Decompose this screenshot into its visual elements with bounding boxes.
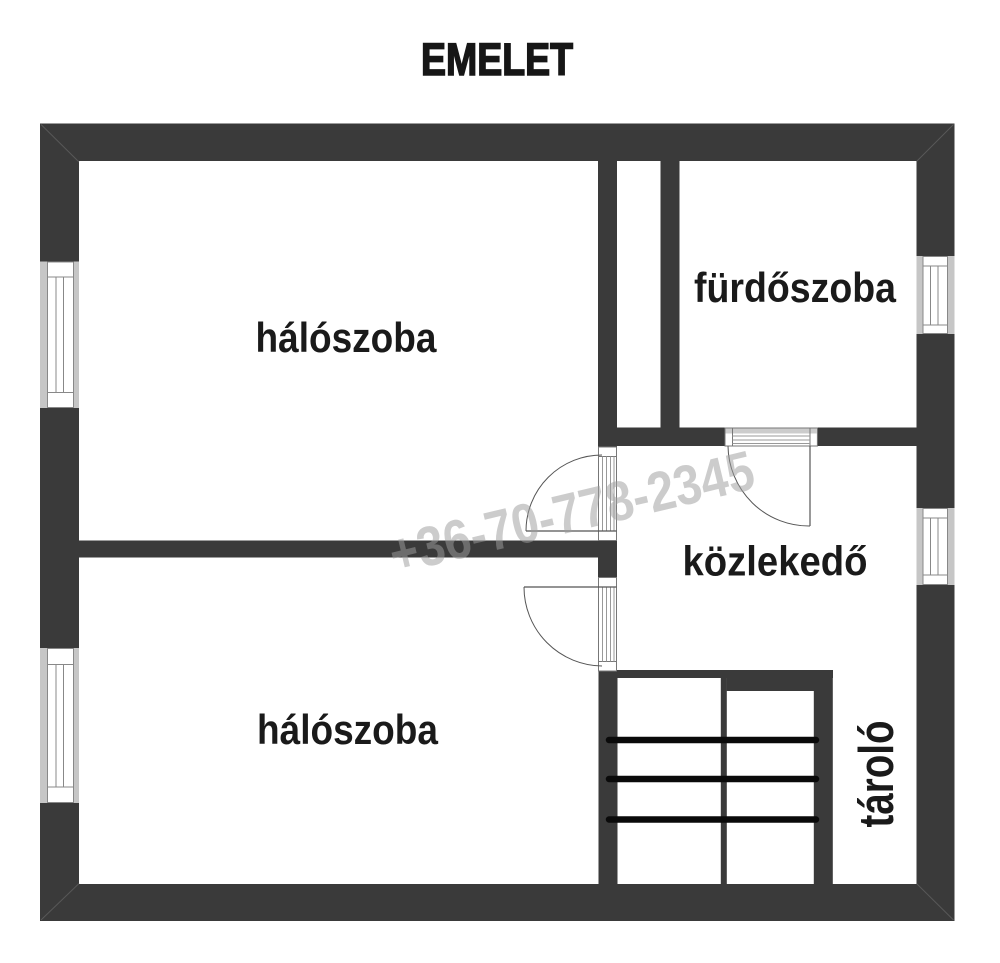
svg-text:közlekedő: közlekedő	[683, 538, 868, 585]
svg-text:hálószoba: hálószoba	[257, 706, 439, 753]
svg-text:tároló: tároló	[850, 721, 904, 828]
svg-text:EMELET: EMELET	[421, 34, 573, 85]
svg-text:fürdőszoba: fürdőszoba	[694, 264, 897, 311]
svg-text:hálószoba: hálószoba	[256, 314, 438, 361]
